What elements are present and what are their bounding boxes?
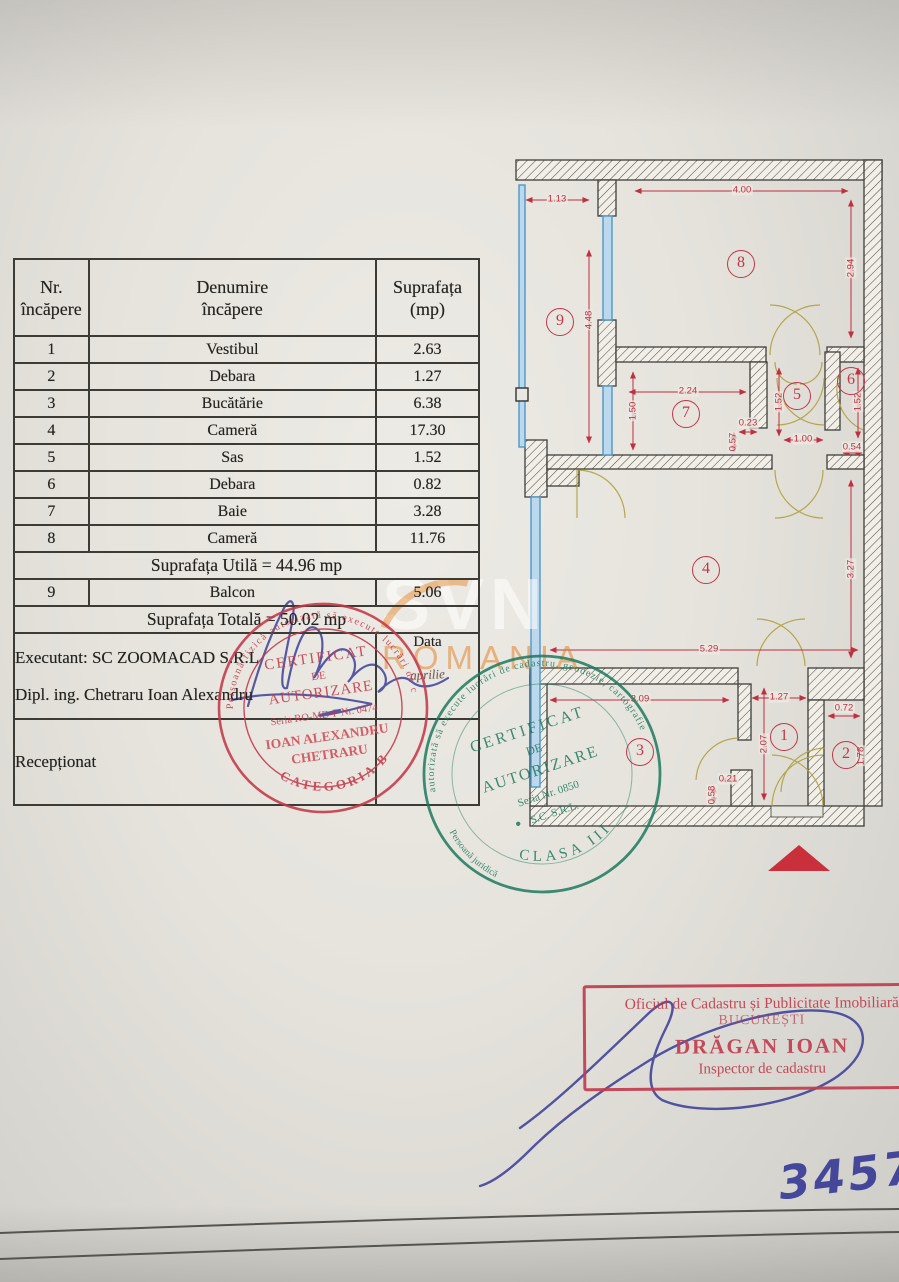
total-utila-row: Suprafața Utilă = 44.96 mp bbox=[14, 552, 479, 579]
table-row: 1Vestibul2.63 bbox=[14, 336, 479, 363]
office-stamp-title: Inspector de cadastru bbox=[590, 1060, 899, 1079]
cell-nr: 8 bbox=[14, 525, 89, 552]
cell-name: Debara bbox=[89, 363, 376, 390]
table-row: 5Sas1.52 bbox=[14, 444, 479, 471]
cell-name: Sas bbox=[89, 444, 376, 471]
cell-area: 2.63 bbox=[376, 336, 479, 363]
cell-nr: 2 bbox=[14, 363, 89, 390]
table-row: 7Baie3.28 bbox=[14, 498, 479, 525]
table-row: 2Debara1.27 bbox=[14, 363, 479, 390]
cell-name: Debara bbox=[89, 471, 376, 498]
office-stamp-line2: BUCUREȘTI bbox=[590, 1012, 899, 1030]
cell-name: Baie bbox=[89, 498, 376, 525]
red-stamp-l1: CERTIFICAT bbox=[263, 643, 368, 673]
north-arrow bbox=[768, 845, 830, 871]
office-stamp: Oficiul de Cadastru și Publicitate Imobi… bbox=[583, 983, 899, 1091]
cell-area: 1.52 bbox=[376, 444, 479, 471]
svg-text:CLASA III: CLASA III bbox=[513, 818, 619, 873]
cell-nr: 6 bbox=[14, 471, 89, 498]
red-stamp-l3: AUTORIZARE bbox=[268, 678, 375, 709]
cell-nr: 7 bbox=[14, 498, 89, 525]
scanned-document: 1.134.484.002.942.241.501.520.230.571.00… bbox=[0, 0, 899, 1282]
cell-nr: 1 bbox=[14, 336, 89, 363]
cell-nr: 3 bbox=[14, 390, 89, 417]
cell-name: Cameră bbox=[89, 525, 376, 552]
office-stamp-name: DRĂGAN IOAN bbox=[590, 1033, 899, 1060]
cell-area: 11.76 bbox=[376, 525, 479, 552]
cell-area: 6.38 bbox=[376, 390, 479, 417]
table-row: 6Debara0.82 bbox=[14, 471, 479, 498]
cell-nr: 4 bbox=[14, 417, 89, 444]
header-nr: Nr. încăpere bbox=[14, 259, 89, 336]
header-denumire: Denumire încăpere bbox=[89, 259, 376, 336]
cell-area: 0.82 bbox=[376, 471, 479, 498]
office-stamp-line1: Oficiul de Cadastru și Publicitate Imobi… bbox=[590, 994, 899, 1014]
cell-area: 17.30 bbox=[376, 417, 479, 444]
green-stamp-l2: DE bbox=[524, 740, 544, 758]
cell-nr: 5 bbox=[14, 444, 89, 471]
cell-name: Vestibul bbox=[89, 336, 376, 363]
table-row: 4Cameră17.30 bbox=[14, 417, 479, 444]
table-row: 3Bucătărie6.38 bbox=[14, 390, 479, 417]
table-header-row: Nr. încăpere Denumire încăpere Suprafața… bbox=[14, 259, 479, 336]
bottom-fold-lines bbox=[0, 1209, 899, 1259]
cell-area: 1.27 bbox=[376, 363, 479, 390]
cell-nr: 9 bbox=[14, 579, 89, 606]
table-row: 8Cameră11.76 bbox=[14, 525, 479, 552]
red-stamp-l2: DE bbox=[310, 669, 326, 683]
cell-name: Cameră bbox=[89, 417, 376, 444]
cell-area: 3.28 bbox=[376, 498, 479, 525]
cell-name: Bucătărie bbox=[89, 390, 376, 417]
green-stamp-bottom-text: CLASA III bbox=[513, 818, 619, 873]
suprafata-utila: Suprafața Utilă = 44.96 mp bbox=[14, 552, 479, 579]
entrance-opening bbox=[771, 806, 823, 817]
header-suprafata: Suprafața (mp) bbox=[376, 259, 479, 336]
